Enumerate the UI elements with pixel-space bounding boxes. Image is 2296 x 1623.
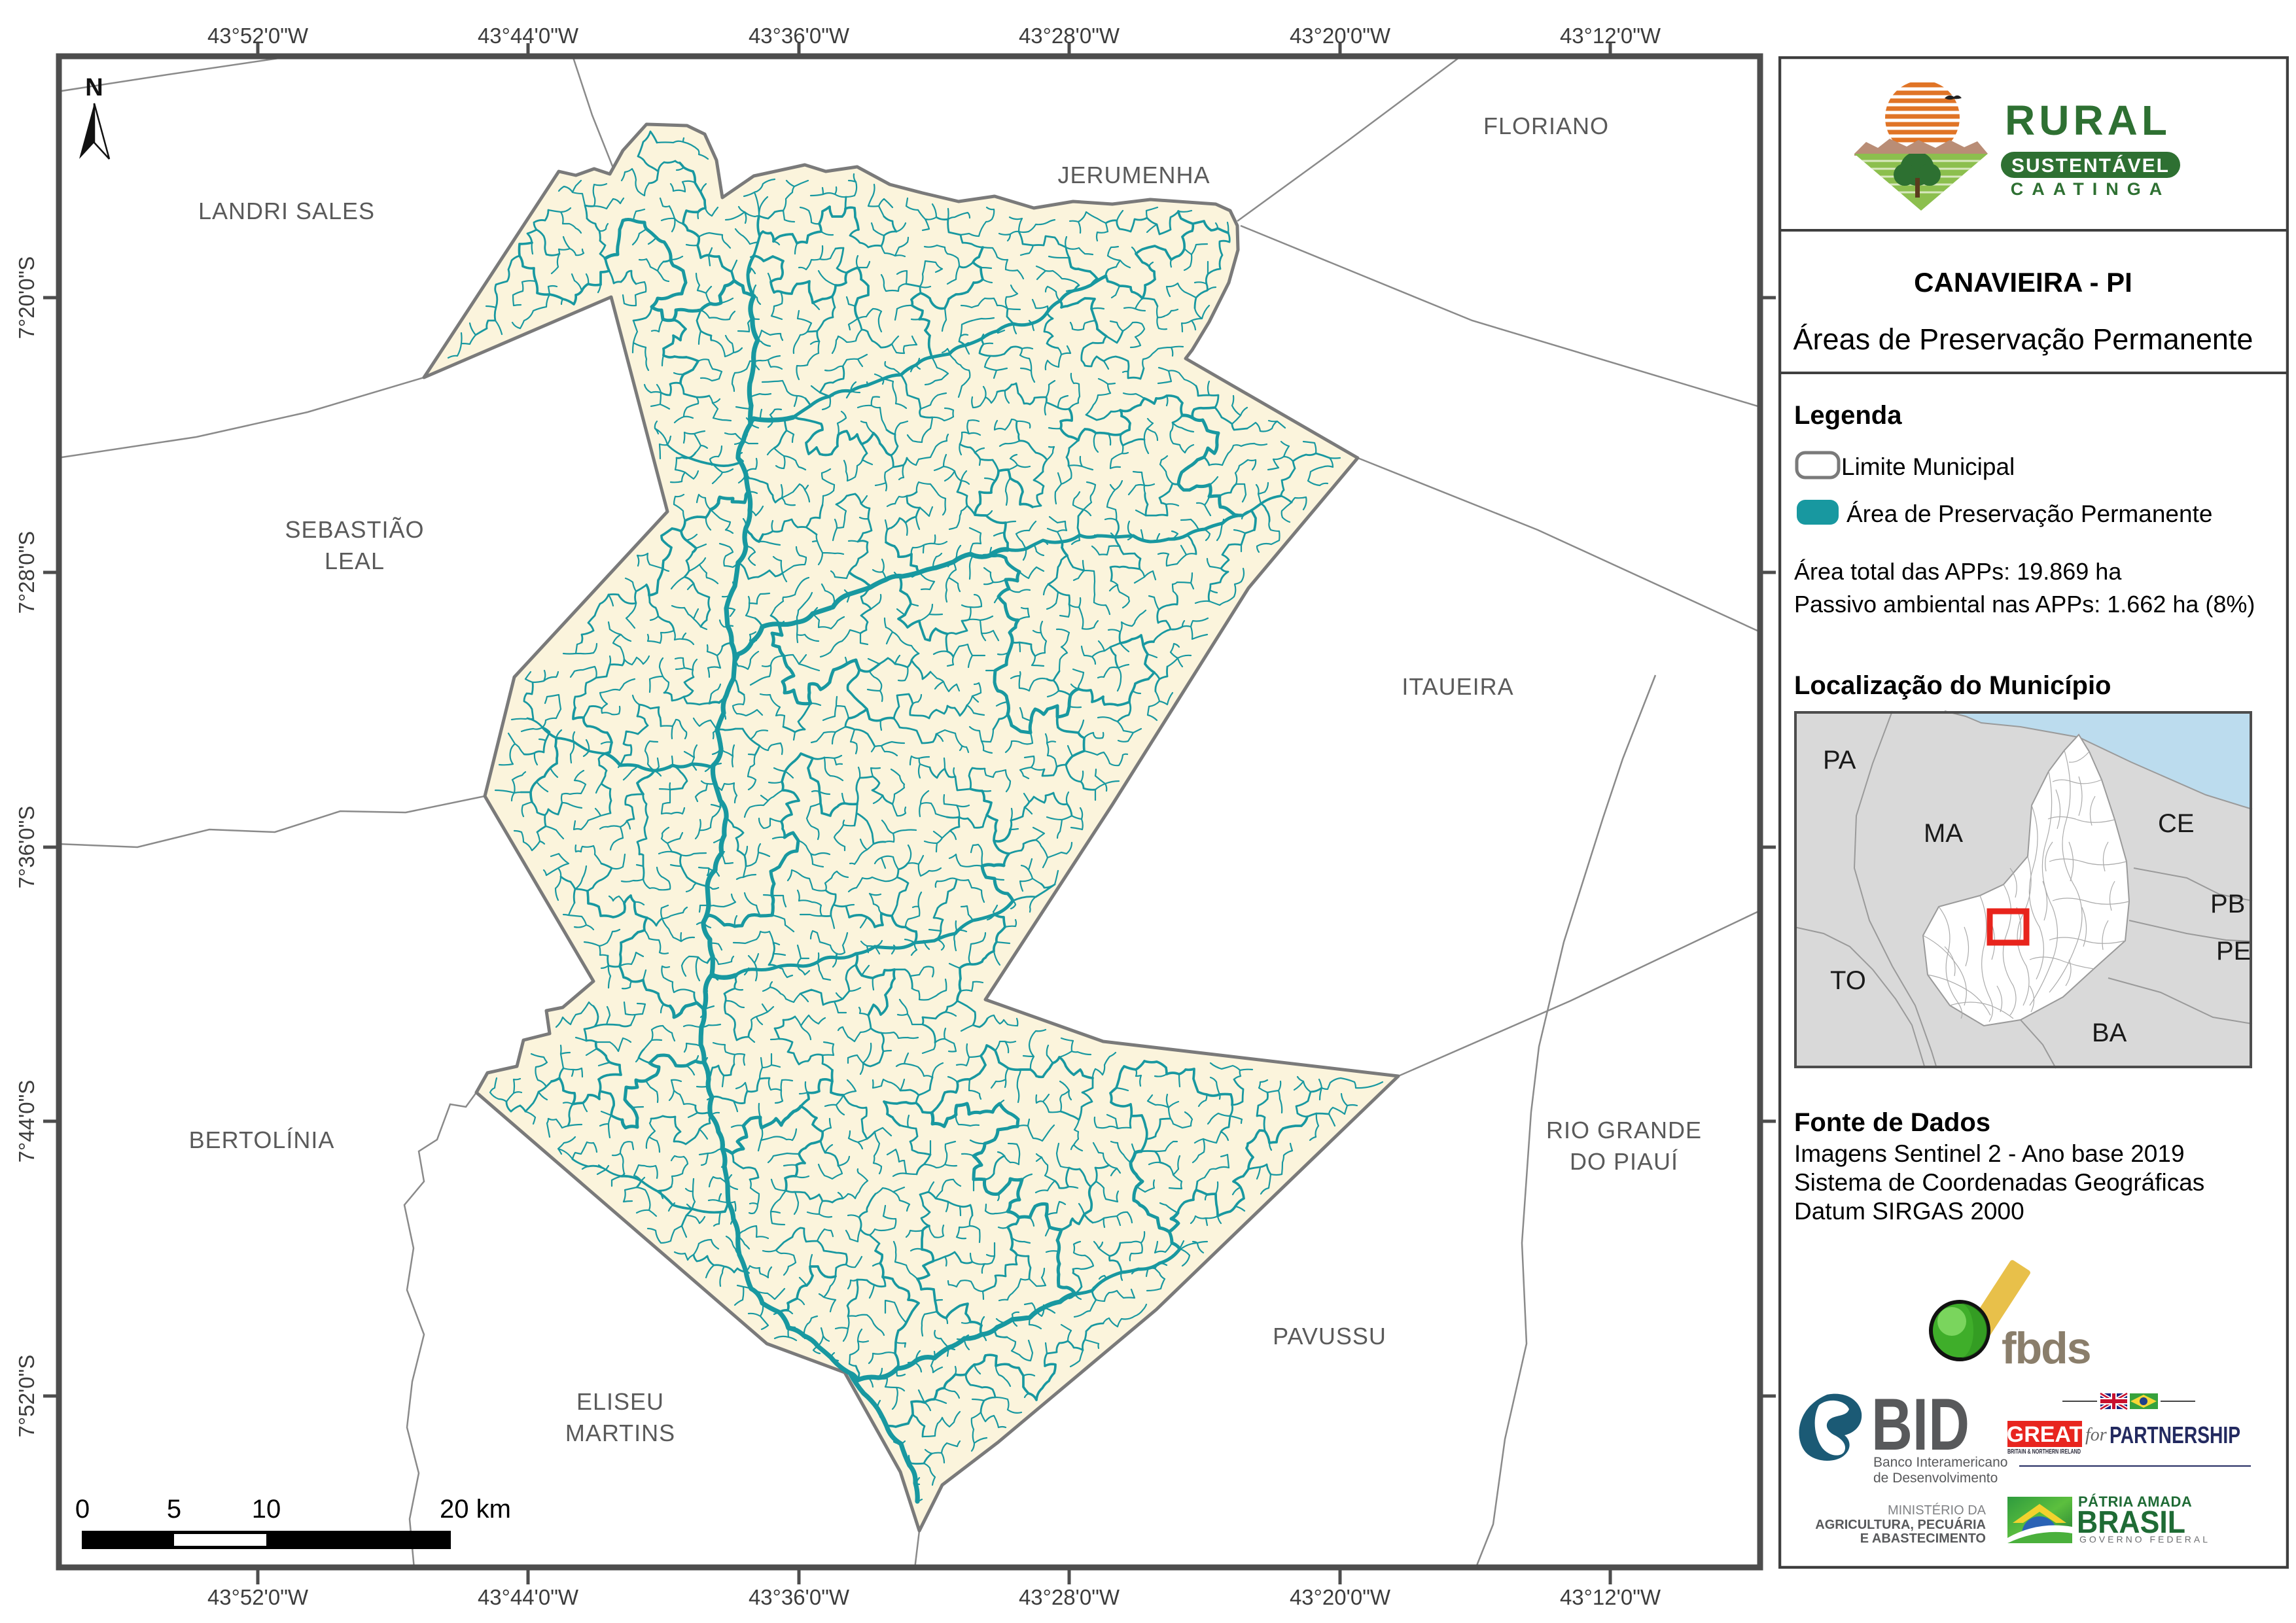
svg-text:5: 5 [167, 1495, 181, 1524]
svg-text:N: N [85, 74, 103, 101]
svg-text:PB: PB [2210, 890, 2245, 918]
svg-text:DO PIAUÍ: DO PIAUÍ [1570, 1148, 1678, 1175]
svg-text:43°28'0"W: 43°28'0"W [1019, 1585, 1120, 1609]
svg-text:Datum SIRGAS 2000: Datum SIRGAS 2000 [1794, 1198, 2024, 1225]
svg-text:43°20'0"W: 43°20'0"W [1290, 24, 1391, 48]
svg-text:RURAL: RURAL [2005, 97, 2171, 144]
svg-text:Limite Municipal: Limite Municipal [1841, 453, 2015, 480]
svg-text:PAVUSSU: PAVUSSU [1273, 1323, 1386, 1350]
svg-text:BA: BA [2092, 1019, 2127, 1047]
svg-text:Sistema de Coordenadas Geográf: Sistema de Coordenadas Geográficas [1794, 1169, 2204, 1196]
svg-text:Passivo ambiental nas APPs: 1.: Passivo ambiental nas APPs: 1.662 ha (8%… [1794, 591, 2255, 618]
svg-text:43°12'0"W: 43°12'0"W [1560, 24, 1661, 48]
svg-text:43°44'0"W: 43°44'0"W [478, 24, 579, 48]
svg-text:LANDRI SALES: LANDRI SALES [198, 198, 375, 224]
svg-text:Banco Interamericano: Banco Interamericano [1873, 1455, 2007, 1470]
svg-text:PA: PA [1823, 746, 1856, 775]
svg-text:20 km: 20 km [440, 1495, 511, 1524]
svg-text:SEBASTIÃO: SEBASTIÃO [285, 516, 424, 543]
svg-text:PARTNERSHIP: PARTNERSHIP [2110, 1422, 2240, 1448]
svg-text:Áreas de Preservação Permanent: Áreas de Preservação Permanente [1793, 323, 2253, 356]
svg-text:LEAL: LEAL [325, 548, 385, 574]
svg-text:43°44'0"W: 43°44'0"W [478, 1585, 579, 1609]
svg-text:E ABASTECIMENTO: E ABASTECIMENTO [1860, 1531, 1986, 1546]
svg-text:7°44'0"S: 7°44'0"S [14, 1080, 39, 1163]
svg-text:43°36'0"W: 43°36'0"W [749, 1585, 850, 1609]
svg-text:BID: BID [1871, 1384, 1969, 1465]
svg-text:Imagens Sentinel 2 - Ano base: Imagens Sentinel 2 - Ano base 2019 [1794, 1140, 2185, 1167]
svg-text:43°20'0"W: 43°20'0"W [1290, 1585, 1391, 1609]
svg-text:RIO GRANDE: RIO GRANDE [1546, 1117, 1702, 1143]
svg-text:MA: MA [1924, 819, 1963, 848]
svg-text:7°52'0"S: 7°52'0"S [14, 1355, 39, 1438]
svg-text:MINISTÉRIO DA: MINISTÉRIO DA [1888, 1503, 1987, 1518]
svg-text:Fonte de Dados: Fonte de Dados [1794, 1108, 1990, 1137]
svg-text:Localização do Município: Localização do Município [1794, 671, 2111, 700]
svg-text:0: 0 [75, 1495, 90, 1524]
svg-text:SUSTENTÁVEL: SUSTENTÁVEL [2011, 154, 2170, 177]
svg-text:PE: PE [2216, 937, 2251, 966]
svg-text:FLORIANO: FLORIANO [1483, 113, 1609, 139]
svg-text:43°36'0"W: 43°36'0"W [749, 24, 850, 48]
svg-text:de Desenvolvimento: de Desenvolvimento [1873, 1471, 1998, 1486]
svg-text:AGRICULTURA, PECUÁRIA: AGRICULTURA, PECUÁRIA [1815, 1517, 1986, 1532]
svg-text:fbds: fbds [2002, 1323, 2091, 1373]
svg-text:GOVERNO FEDERAL: GOVERNO FEDERAL [2079, 1534, 2210, 1544]
svg-text:43°52'0"W: 43°52'0"W [207, 1585, 309, 1609]
svg-text:43°52'0"W: 43°52'0"W [207, 24, 309, 48]
svg-text:10: 10 [252, 1495, 281, 1524]
svg-text:7°20'0"S: 7°20'0"S [14, 256, 39, 340]
svg-text:CE: CE [2158, 809, 2195, 838]
svg-text:ELISEU: ELISEU [576, 1388, 664, 1415]
svg-text:JERUMENHA: JERUMENHA [1057, 162, 1210, 188]
svg-text:BRITAIN & NORTHERN IRELAND: BRITAIN & NORTHERN IRELAND [2007, 1448, 2081, 1456]
svg-text:7°36'0"S: 7°36'0"S [14, 806, 39, 889]
svg-text:CANAVIEIRA - PI: CANAVIEIRA - PI [1914, 267, 2132, 298]
svg-text:Área total das APPs: 19.869 ha: Área total das APPs: 19.869 ha [1794, 558, 2122, 585]
svg-text:7°28'0"S: 7°28'0"S [14, 531, 39, 614]
svg-text:Legenda: Legenda [1794, 401, 1902, 430]
svg-text:TO: TO [1830, 966, 1866, 995]
svg-text:BERTOLÍNIA: BERTOLÍNIA [189, 1126, 335, 1153]
svg-text:GREAT: GREAT [2007, 1422, 2083, 1447]
svg-text:MARTINS: MARTINS [565, 1420, 675, 1446]
svg-text:CAATINGA: CAATINGA [2011, 179, 2170, 199]
svg-text:43°12'0"W: 43°12'0"W [1560, 1585, 1661, 1609]
svg-text:ITAUEIRA: ITAUEIRA [1402, 673, 1513, 700]
svg-text:43°28'0"W: 43°28'0"W [1019, 24, 1120, 48]
svg-text:for: for [2085, 1425, 2107, 1445]
svg-text:Área de Preservação Permanente: Área de Preservação Permanente [1846, 500, 2212, 527]
